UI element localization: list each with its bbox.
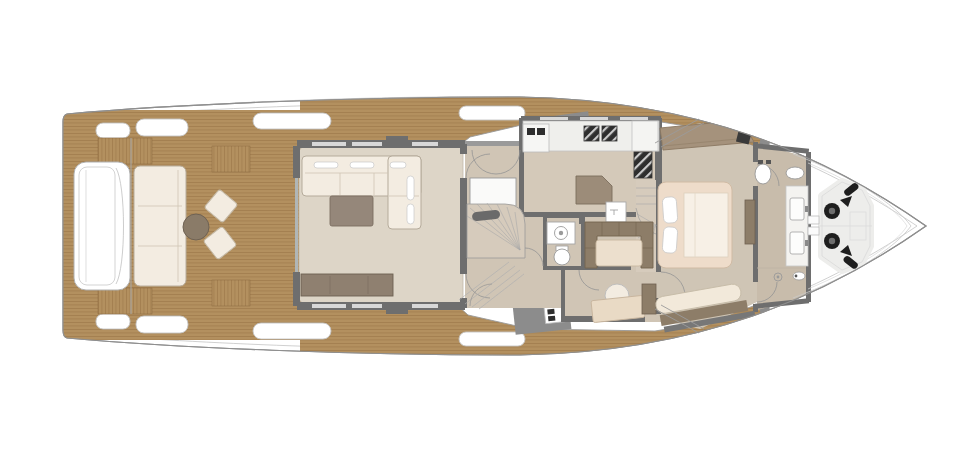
sofa-cushion-pill [314,162,338,168]
crew-berth [470,178,516,206]
cooktop [602,126,617,141]
study-cabinet [642,284,656,314]
sofa-cushion-pill [350,162,374,168]
window-mullion [386,136,408,148]
galley-tall-cabinet [632,121,658,151]
windlass-control [808,227,819,235]
deck-hatch [136,119,188,136]
deck-hatch [459,332,525,346]
mattress [684,193,728,257]
deck-hatch [459,106,525,120]
stern-steps-bottom [98,288,152,314]
deck-hatch [96,123,130,138]
port-staircase [467,203,525,258]
vanity-sink [790,198,804,220]
double-bed [658,182,732,268]
oven [634,152,652,178]
appliance-cabinet [523,124,549,152]
deck-hatch [253,323,331,339]
coffee-table [330,196,373,226]
galley-island [576,176,612,204]
cooktop [584,126,599,141]
deck-hatch [253,113,331,129]
deck-hatch [136,316,188,333]
transom-panel [74,162,130,290]
sofa-cushion-pill [407,176,414,200]
round-table [183,214,209,240]
yacht-floor-plan-drawing [0,0,960,450]
dinette-table [596,240,642,266]
sofa-cushion-pill [407,204,414,224]
tv-cabinet [745,200,755,244]
pillow [662,227,678,254]
sideboard [301,274,393,296]
vanity-sink [790,232,804,254]
toilet [755,164,771,184]
galley-sink [606,202,626,222]
windlass-control [808,216,819,224]
pillow [662,197,678,224]
window-mullion [386,302,408,314]
bidet [786,167,804,179]
transom [74,138,131,314]
deck-hatch [96,314,130,329]
cockpit-steps-bottom [212,280,250,306]
stern-steps-top [98,138,152,164]
sofa-cushion-pill [390,162,406,168]
yacht-deck-plan-page [0,0,960,450]
cockpit-steps-top [212,146,250,172]
toilet [554,249,570,265]
